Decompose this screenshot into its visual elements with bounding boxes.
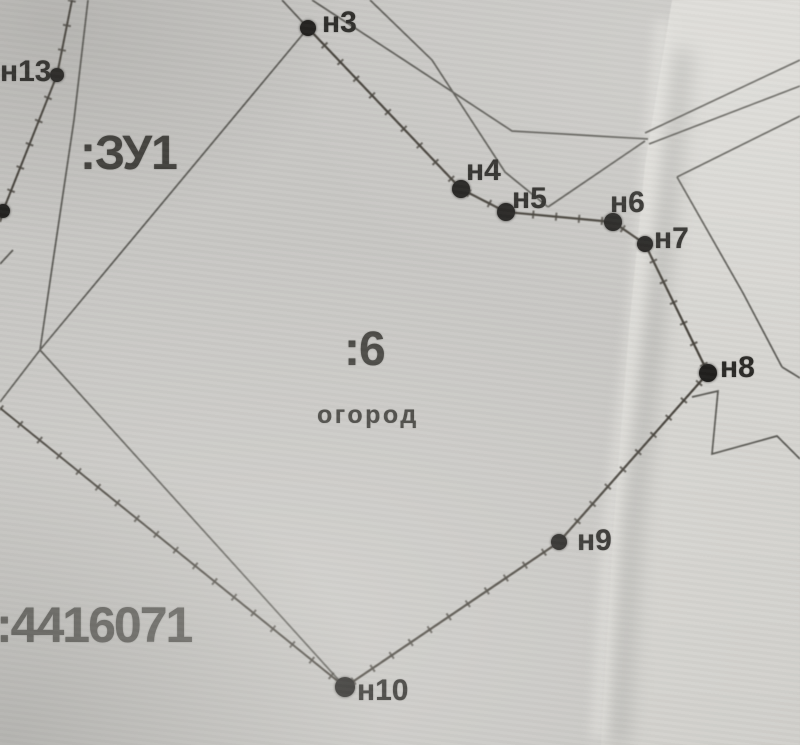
cadastral-map-scan: н13н3н4н5н6н7н8н9н10 :ЗУ1 :6 огород :441… [0,0,800,745]
survey-point-n9 [551,534,567,550]
survey-point-label-n10: н10 [357,676,409,706]
survey-point-label-n4: н4 [466,156,501,186]
parcel-label-zu1: :ЗУ1 [80,130,177,178]
parcel-label-6: :6 [344,326,385,374]
n13-boundary-ticks [3,0,72,211]
survey-point-label-n6: н6 [610,188,645,218]
road-line-lower [370,0,548,207]
survey-point-n7 [637,236,653,252]
survey-point-n3 [300,20,316,36]
vertex-southwest-line [0,350,40,402]
zu1-diagonal-to-n3-line [40,28,308,350]
survey-point-label-n8: н8 [720,353,755,383]
survey-point-label-n3: н3 [322,8,357,38]
survey-point-label-n5: н5 [512,184,547,214]
survey-point-label-n9: н9 [577,526,612,556]
survey-point-n10 [335,677,355,697]
survey-point-label-n7: н7 [654,224,689,254]
left-edge-small-segment [0,250,13,264]
n13-boundary-line [0,0,72,222]
road-line-upper [312,0,648,139]
survey-point-n13 [50,68,64,82]
cadastral-number-label: :4416071 [0,600,191,650]
survey-point-label-n13: н13 [0,57,52,87]
land-use-label: огород [317,403,419,428]
survey-point-n8 [699,364,717,382]
